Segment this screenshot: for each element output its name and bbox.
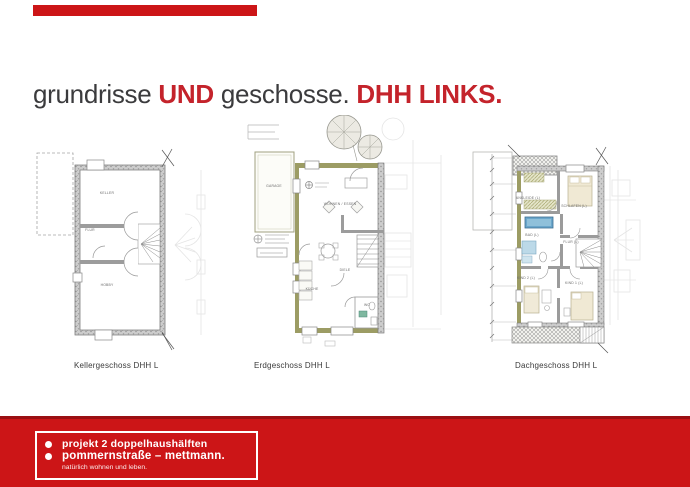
room-label-ankleide: ANKLEIDE (L) — [508, 196, 548, 200]
bed-kind2 — [524, 286, 539, 313]
dormer-outline — [473, 152, 512, 230]
window — [73, 273, 82, 282]
survey-annotation — [254, 235, 289, 257]
room-label-kind1: KIND 1 (L) — [558, 281, 590, 285]
room-label: HOBBY — [82, 283, 132, 287]
title-word-und: UND — [158, 79, 213, 109]
garage — [255, 152, 294, 232]
dashed-annex-outline — [37, 153, 73, 235]
chair — [545, 306, 550, 311]
footer-band: projekt 2 doppelhaushälften pommernstraß… — [0, 416, 690, 487]
shower — [522, 241, 536, 254]
bed-kind1 — [571, 292, 593, 320]
wardrobe — [524, 200, 556, 209]
room-label-schlafen: SCHLAFEN (L) — [553, 204, 595, 208]
door-arcs — [93, 212, 138, 276]
section-marker — [598, 343, 608, 353]
room-label-flur: FLUR (L) — [559, 240, 583, 244]
footer-address-line: pommernstraße – mettmann. — [62, 450, 225, 462]
floorplan-kellergeschoss — [35, 140, 220, 355]
header-accent-bar — [33, 5, 257, 16]
room-label-wc: WC — [358, 303, 376, 307]
bullet-icon — [45, 453, 52, 460]
footer-logo-box: projekt 2 doppelhaushälften pommernstraß… — [35, 431, 258, 480]
interior-details — [299, 168, 384, 346]
site-lines — [248, 125, 279, 139]
window — [87, 160, 104, 170]
room-label: KELLER — [82, 191, 132, 195]
terrace-ladder — [580, 327, 604, 343]
room-label-living: WOHNEN / ESSEN — [312, 202, 368, 206]
title-word-grundrisse: grundrisse — [33, 79, 151, 109]
caption-dachgeschoss: Dachgeschoss DHH L — [515, 361, 597, 370]
neighbour-half-ghost — [604, 166, 640, 325]
caption-erdgeschoss: Erdgeschoss DHH L — [254, 361, 330, 370]
sink — [522, 256, 532, 263]
neighbour-half-ghost — [382, 118, 441, 329]
caption-kellergeschoss: Kellergeschoss DHH L — [74, 361, 158, 370]
room-label-hall: DIELE — [330, 268, 360, 272]
floorplan-kellergeschoss-drawing — [35, 140, 220, 355]
room-label-bad: BAD (L) — [519, 233, 545, 237]
wardrobe — [524, 173, 544, 182]
section-marker — [596, 147, 608, 165]
title-word-geschosse: geschosse. — [221, 79, 350, 109]
window — [95, 330, 112, 340]
floorplan-dachgeschoss-drawing — [468, 140, 690, 355]
desk — [542, 290, 551, 303]
bullet-icon — [45, 441, 52, 448]
bathtub — [525, 217, 553, 228]
room-label-kitchen: KÜCHE — [294, 287, 330, 291]
floorplan-erdgeschoss — [245, 115, 480, 355]
floorplan-erdgeschoss-drawing — [245, 115, 480, 355]
footer-project-line: projekt 2 doppelhaushälften — [62, 438, 207, 450]
room-label-garage: GARAGE — [253, 184, 295, 188]
toilet — [540, 252, 547, 262]
side-table — [564, 308, 570, 316]
staircase — [138, 224, 160, 264]
neighbour-half-ghost — [175, 170, 205, 335]
slide: grundrisseUNDgeschosse.DHH LINKS. — [0, 0, 690, 487]
tree-icon — [327, 115, 382, 161]
bed-schlafen — [568, 176, 592, 206]
footer-slogan-line: natürlich wohnen und leben. — [62, 464, 147, 471]
room-label: FLUR — [70, 228, 110, 232]
title-word-dhh-links: DHH LINKS. — [356, 79, 502, 109]
floorplan-dachgeschoss — [468, 140, 690, 355]
page-title: grundrisseUNDgeschosse.DHH LINKS. — [33, 79, 509, 110]
room-label-kind2: KIND 2 (L) — [510, 276, 542, 280]
